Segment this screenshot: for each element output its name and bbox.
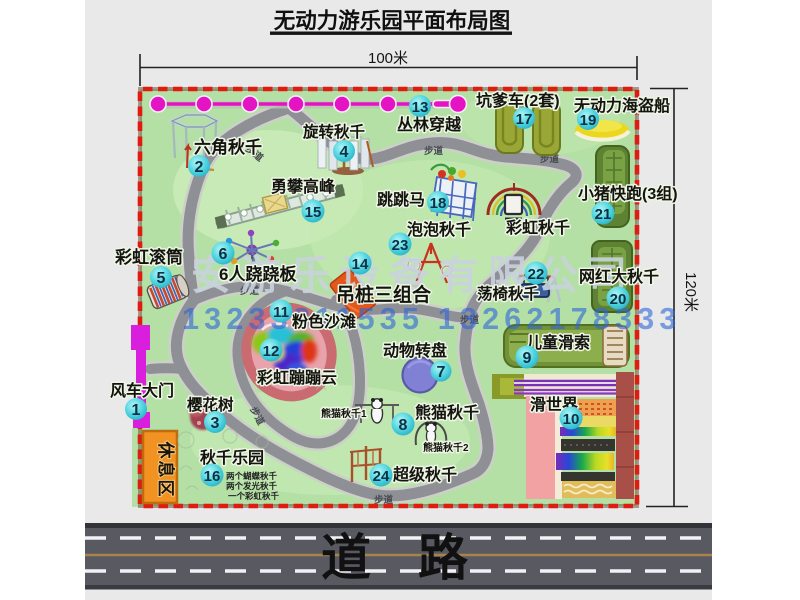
svg-text:彩虹秋千: 彩虹秋千	[505, 218, 570, 237]
svg-text:熊猫秋千1: 熊猫秋千1	[321, 407, 367, 420]
svg-text:4: 4	[340, 144, 349, 161]
svg-text:17: 17	[516, 111, 533, 128]
svg-text:休: 休	[156, 441, 176, 460]
svg-text:无动力游乐园平面布局图: 无动力游乐园平面布局图	[274, 8, 511, 33]
svg-text:熊猫秋千2: 熊猫秋千2	[423, 441, 469, 454]
svg-text:24: 24	[373, 468, 390, 485]
svg-text:丛林穿越: 丛林穿越	[397, 115, 462, 134]
svg-text:6人跷跷板: 6人跷跷板	[219, 264, 297, 284]
svg-text:1: 1	[132, 402, 141, 419]
svg-text:5: 5	[157, 270, 166, 287]
svg-text:路: 路	[418, 530, 469, 586]
svg-text:13: 13	[412, 99, 429, 116]
svg-text:18: 18	[430, 195, 447, 212]
svg-text:2: 2	[195, 159, 204, 176]
svg-text:旋转秋千: 旋转秋千	[302, 122, 366, 141]
svg-text:10: 10	[563, 411, 580, 428]
svg-text:道: 道	[321, 530, 371, 586]
svg-text:一个彩虹秋千: 一个彩虹秋千	[228, 491, 280, 501]
svg-text:熊猫秋千: 熊猫秋千	[415, 403, 479, 422]
svg-text:步道: 步道	[424, 145, 444, 157]
svg-text:3: 3	[211, 415, 220, 432]
svg-text:风车大门: 风车大门	[110, 381, 174, 400]
svg-text:两个发光秋千: 两个发光秋千	[226, 481, 278, 491]
svg-text:23: 23	[392, 237, 409, 254]
svg-text:吊桩三组合: 吊桩三组合	[336, 283, 432, 306]
svg-text:6: 6	[219, 246, 228, 263]
svg-text:坑爹车(2套): 坑爹车(2套)	[476, 91, 560, 110]
svg-text:粉色沙滩: 粉色沙滩	[292, 312, 356, 331]
svg-text:荡椅秋千: 荡椅秋千	[477, 284, 540, 303]
svg-text:16: 16	[204, 468, 221, 485]
svg-text:超级秋千: 超级秋千	[392, 465, 457, 484]
svg-text:22: 22	[528, 266, 545, 283]
svg-text:两个蝴蝶秋千: 两个蝴蝶秋千	[226, 471, 278, 481]
svg-text:20: 20	[610, 291, 627, 308]
svg-text:19: 19	[580, 112, 597, 129]
svg-text:7: 7	[437, 364, 446, 381]
svg-text:跳跳马: 跳跳马	[377, 190, 425, 209]
svg-text:勇攀高峰: 勇攀高峰	[271, 177, 336, 196]
svg-text:12: 12	[263, 343, 280, 360]
svg-text:六角秋千: 六角秋千	[194, 137, 262, 157]
svg-text:8: 8	[399, 417, 408, 434]
svg-text:13233811535 13262178333: 13233811535 13262178333	[182, 302, 682, 336]
svg-text:彩虹蹦蹦云: 彩虹蹦蹦云	[256, 368, 337, 387]
svg-text:小猪快跑(3组): 小猪快跑(3组)	[578, 184, 678, 203]
svg-text:息: 息	[156, 461, 176, 478]
svg-text:区: 区	[156, 480, 175, 497]
svg-text:120米: 120米	[682, 272, 699, 312]
svg-text:11: 11	[273, 304, 289, 321]
svg-text:9: 9	[523, 350, 532, 367]
svg-text:动物转盘: 动物转盘	[383, 341, 447, 360]
svg-text:21: 21	[595, 206, 612, 223]
svg-text:彩虹滚筒: 彩虹滚筒	[114, 247, 183, 267]
svg-text:15: 15	[305, 204, 322, 221]
svg-text:14: 14	[352, 256, 369, 273]
svg-text:网红大秋千: 网红大秋千	[579, 267, 659, 286]
svg-text:100米: 100米	[368, 50, 408, 67]
svg-text:泡泡秋千: 泡泡秋千	[407, 220, 471, 239]
svg-text:樱花树: 樱花树	[187, 395, 234, 414]
